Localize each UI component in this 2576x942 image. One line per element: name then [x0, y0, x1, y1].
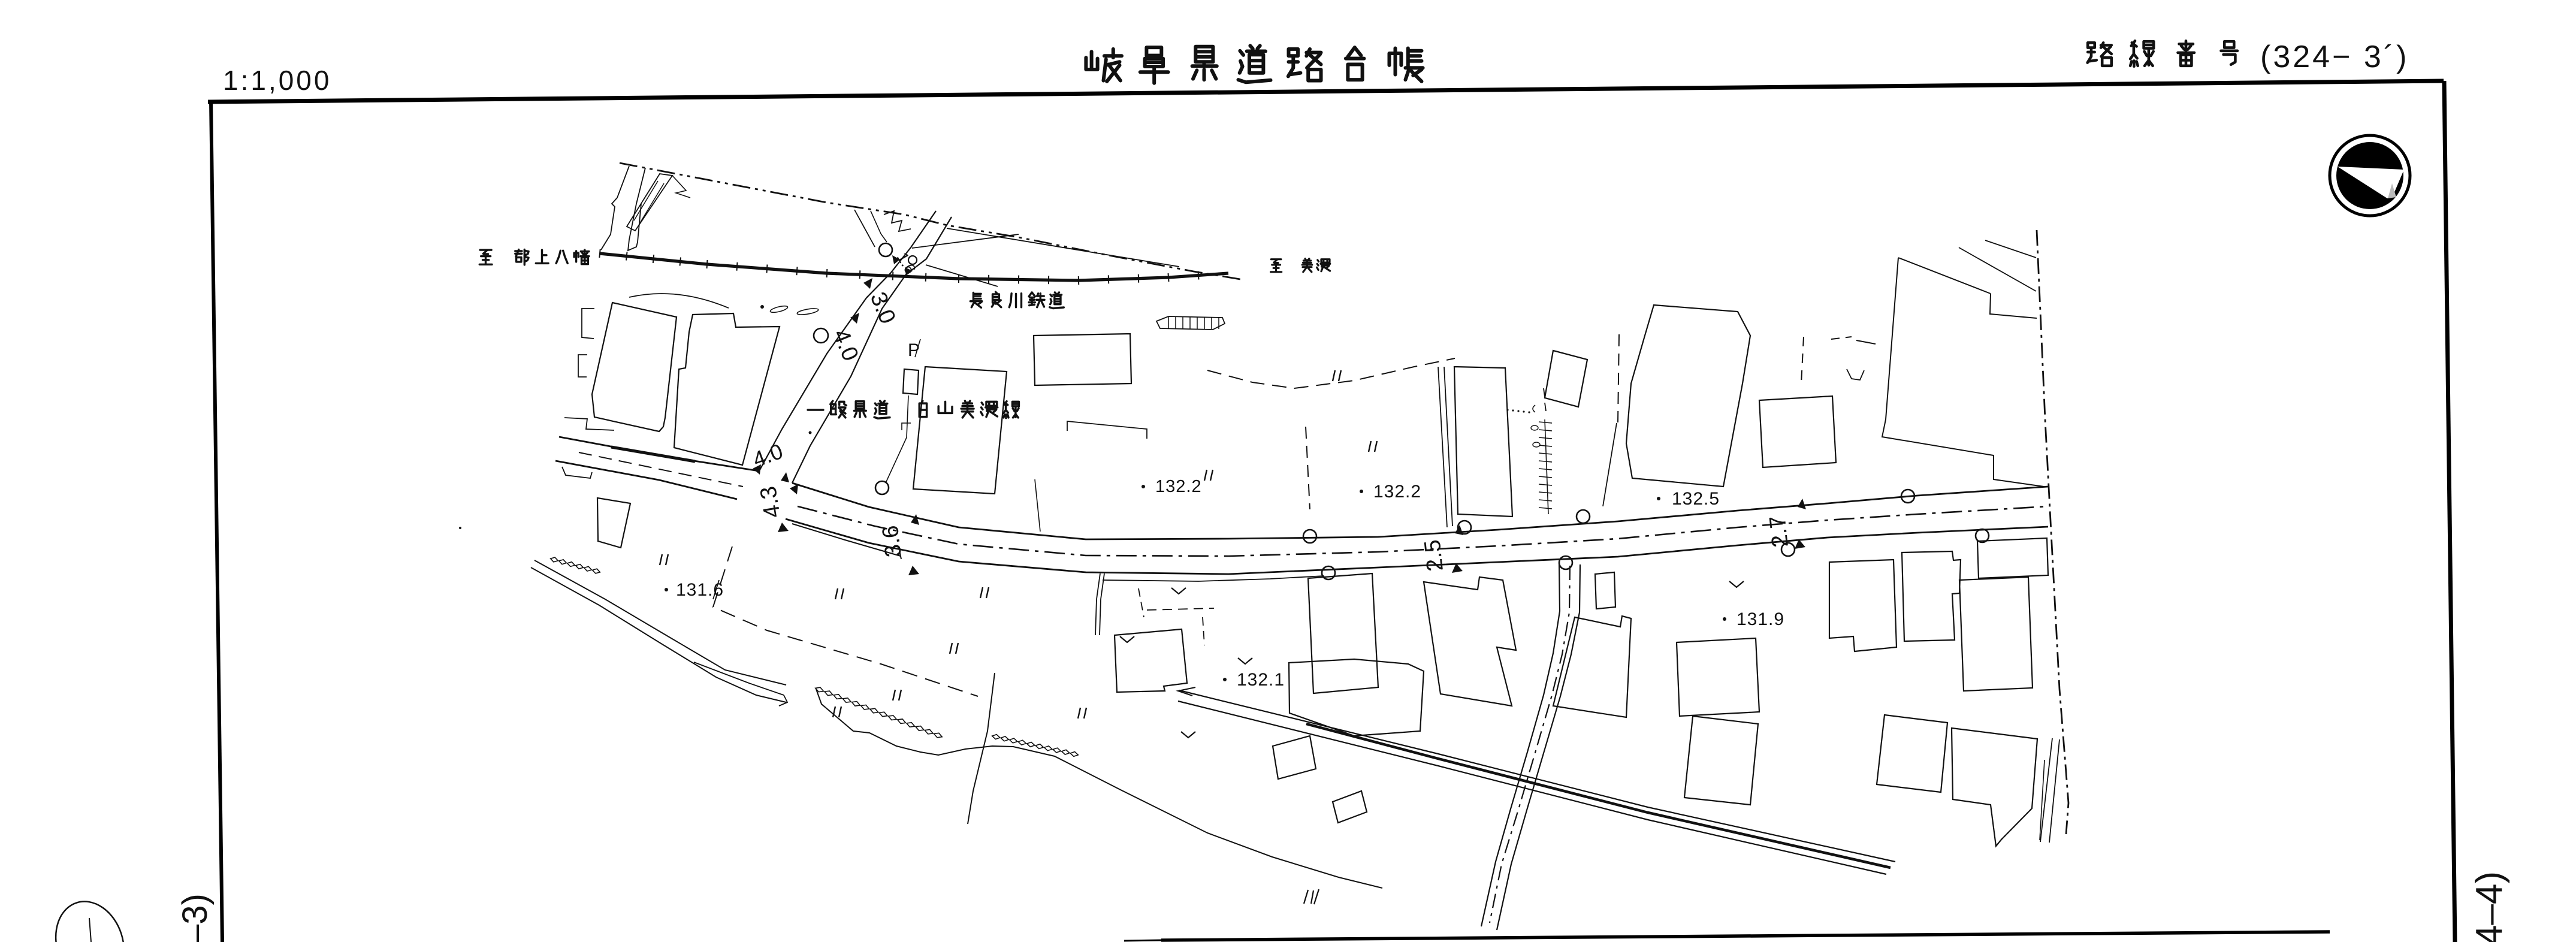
svg-text:131.9: 131.9	[1737, 609, 1784, 629]
svg-text:4.3: 4.3	[756, 484, 786, 520]
svg-text:132.5: 132.5	[1672, 489, 1720, 509]
svg-text:3.6: 3.6	[878, 524, 907, 558]
svg-text:–3): –3)	[176, 893, 215, 942]
svg-text:(324− 3´): (324− 3´)	[2260, 40, 2409, 74]
svg-text:131.6: 131.6	[676, 580, 724, 600]
svg-text:2.5: 2.5	[1420, 539, 1448, 573]
svg-text:132.1: 132.1	[1237, 670, 1285, 690]
svg-text:1:1,000: 1:1,000	[223, 65, 331, 96]
svg-text:132.2: 132.2	[1155, 477, 1202, 496]
svg-text:4–4): 4–4)	[2469, 871, 2510, 942]
svg-text:132.2: 132.2	[1373, 482, 1421, 502]
svg-text:P: P	[908, 340, 920, 360]
